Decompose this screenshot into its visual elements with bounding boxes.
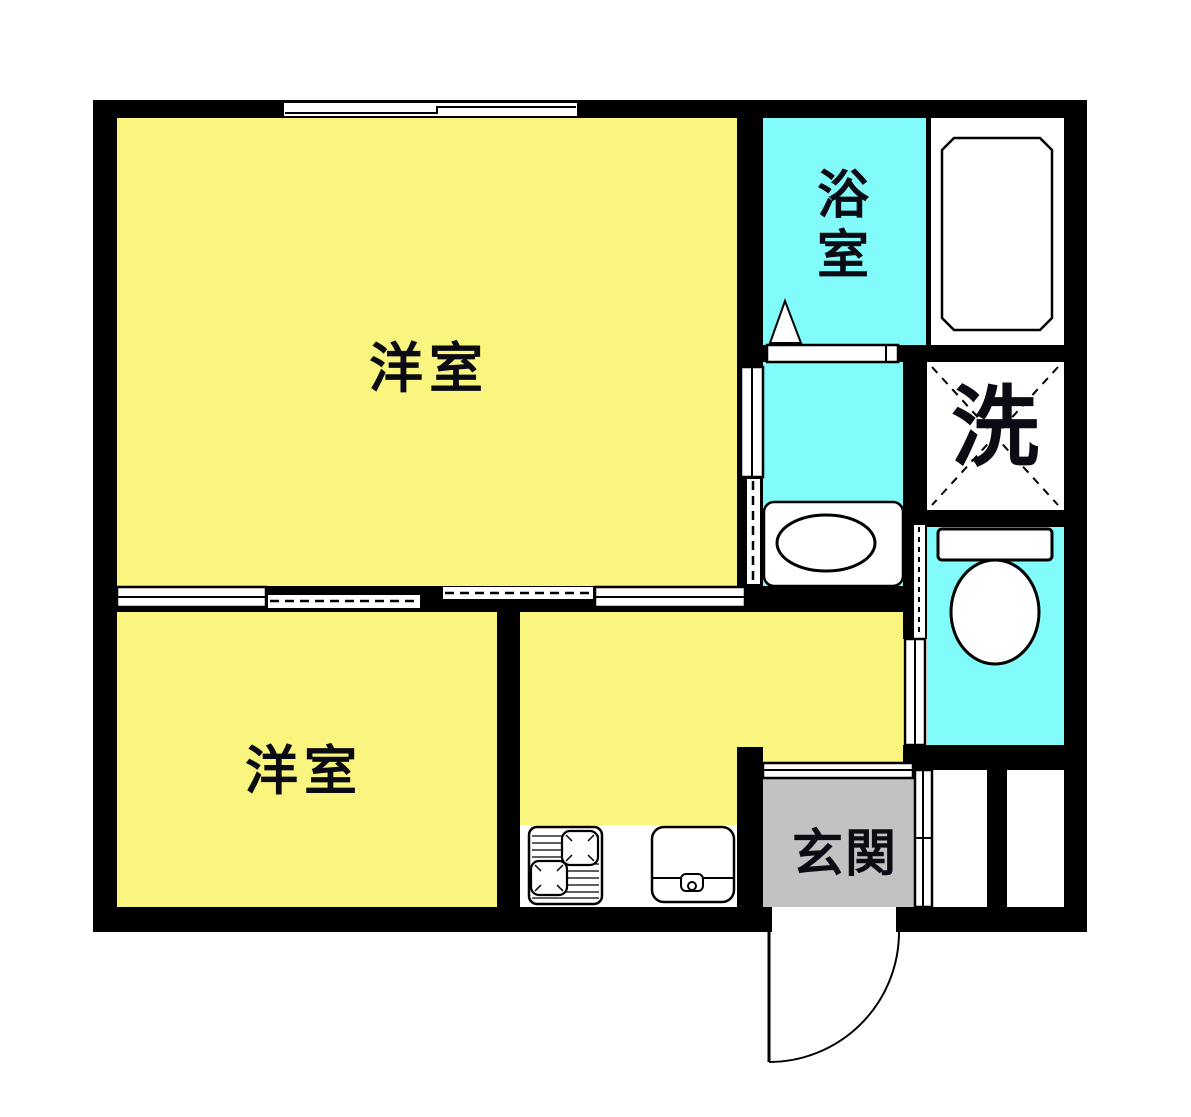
room-label-entrance: 玄関 bbox=[755, 812, 935, 886]
toilet-wall-dash-icon bbox=[914, 525, 925, 639]
wall-laundry-bottom bbox=[903, 510, 1064, 527]
washbasin-icon bbox=[764, 502, 903, 586]
front-door-swing-icon bbox=[769, 932, 899, 1062]
room-label-laundry: 洗 bbox=[943, 378, 1047, 478]
divider-door-left-icon bbox=[117, 587, 266, 607]
floor-plan-canvas: 洋室 洋室 浴室 洗 玄関 bbox=[0, 0, 1191, 1117]
room-label-bedroom: 洋室 bbox=[204, 729, 404, 805]
stove-icon bbox=[529, 827, 602, 904]
wall-outer-bottom bbox=[93, 907, 1087, 932]
divider-sliding-dash-upper-icon bbox=[443, 587, 593, 599]
wall-bedroom-kitchen bbox=[497, 612, 520, 907]
wall-toilet-bottom bbox=[903, 745, 1087, 770]
wall-outer-top bbox=[93, 100, 1087, 118]
divider-door-right-icon bbox=[595, 587, 745, 607]
toilet-door-icon bbox=[905, 639, 925, 745]
floor-plan-drawing bbox=[0, 0, 1191, 1117]
wall-bathroom-bathtub bbox=[926, 118, 931, 345]
wall-washroom-bottom bbox=[743, 586, 903, 612]
wall-outer-left bbox=[93, 100, 117, 932]
room-kitchen-floor-upper bbox=[520, 612, 903, 765]
front-door-opening bbox=[770, 907, 898, 932]
wall-washroom-right bbox=[903, 362, 927, 510]
bathroom-door-icon bbox=[767, 345, 898, 362]
sliding-window-icon bbox=[283, 102, 578, 117]
wall-storage-divider bbox=[987, 770, 1007, 907]
storage-compartment-right bbox=[1007, 770, 1064, 907]
room-label-living: 洋室 bbox=[329, 324, 529, 403]
kitchen-sink-icon bbox=[652, 827, 734, 902]
bathtub-icon bbox=[942, 138, 1052, 330]
entrance-hall-door-icon bbox=[763, 763, 913, 778]
window-frame bbox=[283, 102, 578, 117]
living-hall-sliding-dash-icon bbox=[747, 479, 760, 584]
living-hall-door-icon bbox=[741, 367, 763, 477]
room-kitchen-floor-lower bbox=[520, 765, 743, 825]
divider-sliding-dash-lower-icon bbox=[268, 595, 420, 608]
storage-compartment-left bbox=[932, 770, 987, 907]
wall-outer-right bbox=[1064, 100, 1087, 932]
room-label-bathroom: 浴室 bbox=[814, 166, 872, 286]
